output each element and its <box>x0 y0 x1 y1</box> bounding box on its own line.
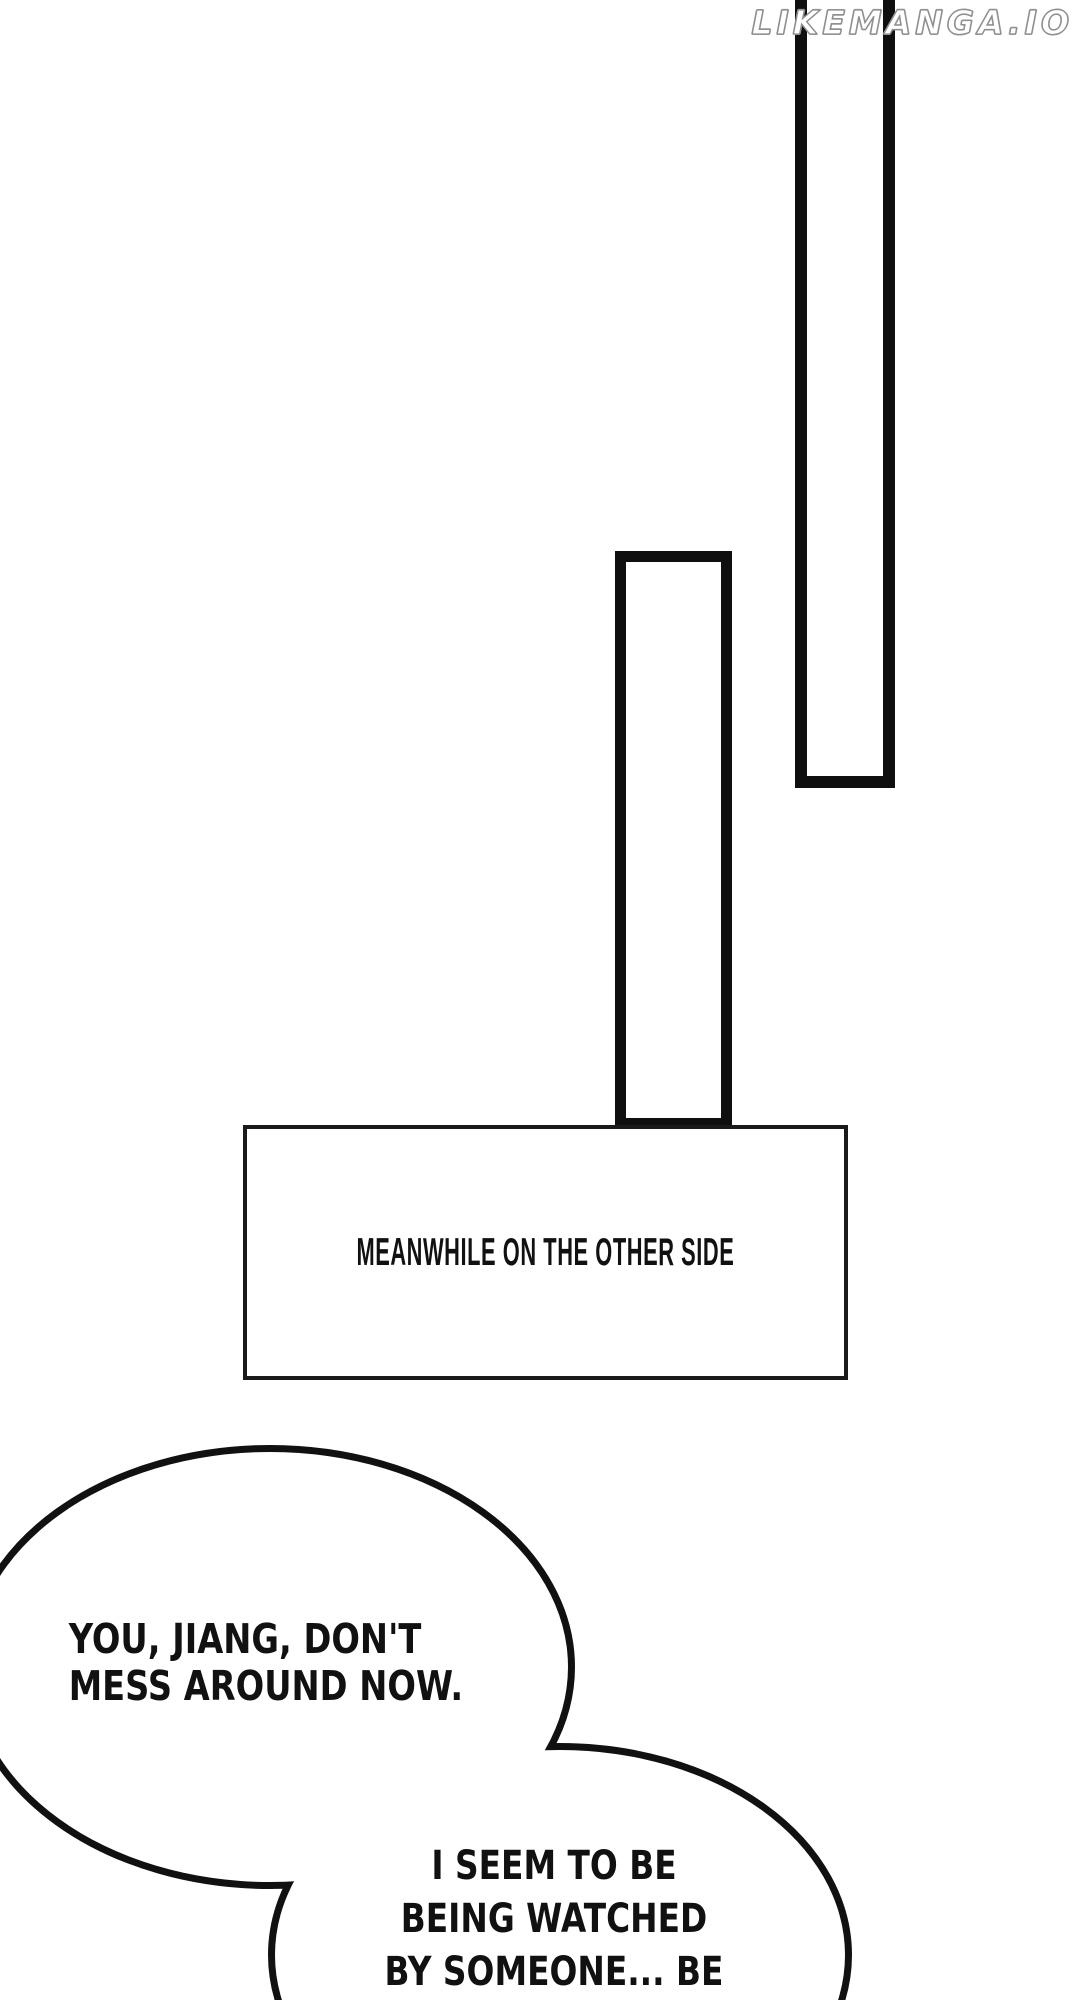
speech-bubble-2-line-1: I SEEM TO BE <box>378 1840 731 1893</box>
speech-bubble-1-line-1: YOU, JIANG, DON'T <box>69 1616 422 1663</box>
speech-bubble-1-text: YOU, JIANG, DON'T MESS AROUND NOW. <box>69 1616 422 1710</box>
speech-bubble-1-line-2: MESS AROUND NOW. <box>69 1663 422 1710</box>
site-watermark: LIKEMANGA.IO <box>751 3 1073 42</box>
speech-bubble-2-line-2: BEING WATCHED <box>378 1893 731 1946</box>
speech-bubble-2-line-3: BY SOMEONE... BE <box>378 1946 731 1999</box>
speech-bubble-2-text: I SEEM TO BE BEING WATCHED BY SOMEONE...… <box>378 1840 731 1999</box>
